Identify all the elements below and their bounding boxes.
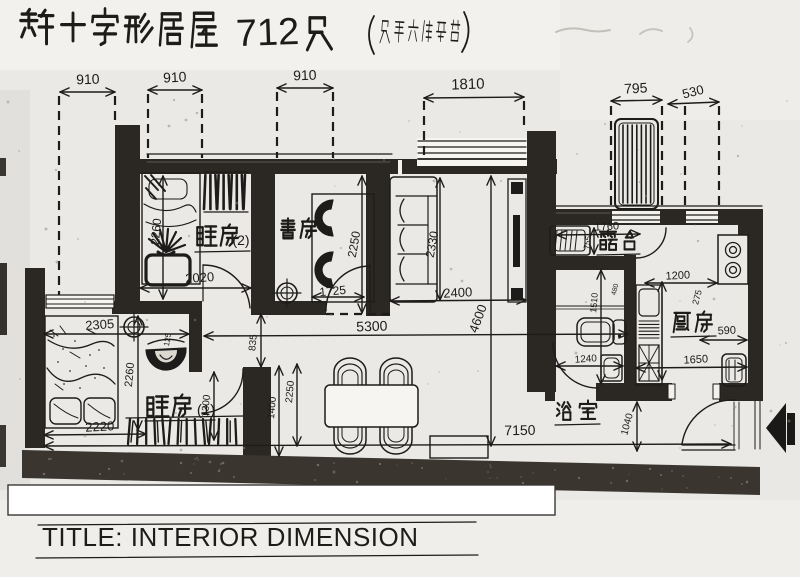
svg-text:2250: 2250 [284,380,297,404]
svg-text:2400: 2400 [443,284,473,300]
svg-text:1400: 1400 [266,396,279,420]
svg-text:590: 590 [717,325,736,338]
svg-text:910: 910 [163,68,187,85]
svg-text:2260: 2260 [123,362,137,387]
svg-text:835: 835 [247,334,259,352]
svg-text:1510: 1510 [588,292,600,313]
svg-text:1200: 1200 [665,269,690,282]
svg-text:712: 712 [235,11,300,55]
svg-text:910: 910 [293,67,317,84]
svg-text:7150: 7150 [504,422,536,439]
svg-text:(1): (1) [197,402,215,419]
svg-text:1810: 1810 [451,75,485,93]
svg-text:1650: 1650 [683,353,708,366]
svg-text:795: 795 [624,79,648,96]
svg-text:910: 910 [76,71,100,88]
svg-text:TITLE: INTERIOR DIMENSION: TITLE: INTERIOR DIMENSION [42,522,419,552]
svg-text:2220: 2220 [85,418,115,434]
svg-text:5300: 5300 [356,317,388,334]
svg-text:(2): (2) [232,232,249,248]
svg-text:1240: 1240 [574,353,597,366]
